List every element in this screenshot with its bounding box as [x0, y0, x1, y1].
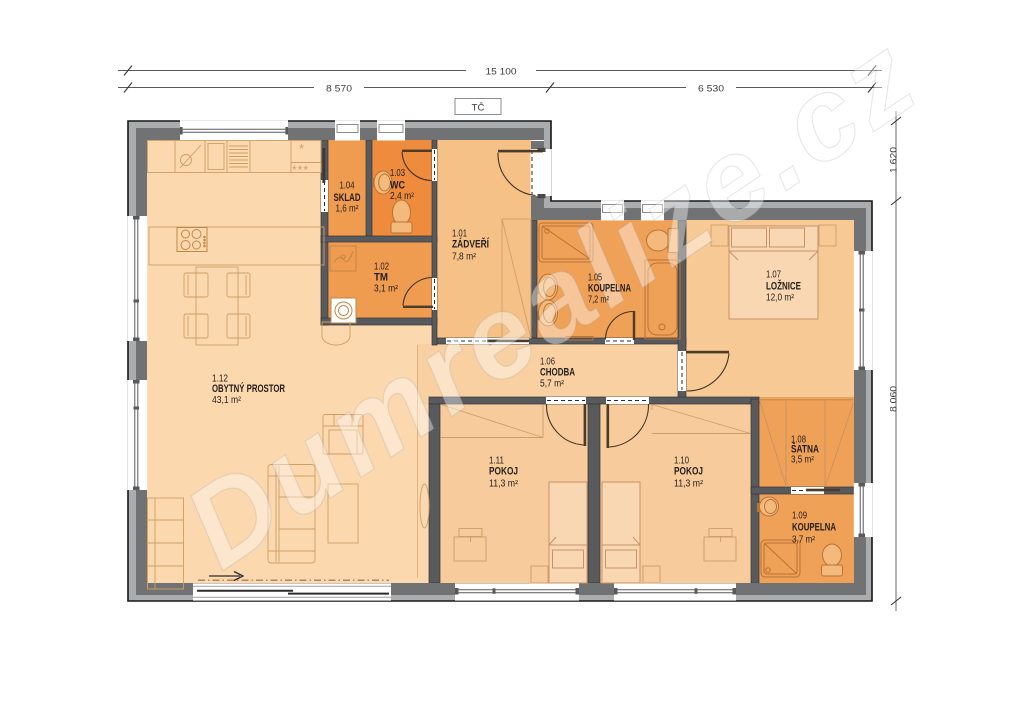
svg-text:11,3 m²: 11,3 m² — [674, 479, 704, 490]
svg-text:3,7 m²: 3,7 m² — [792, 535, 816, 546]
svg-text:KOUPELNA: KOUPELNA — [792, 522, 836, 534]
svg-text:SKLAD: SKLAD — [334, 192, 361, 204]
svg-text:3,1 m²: 3,1 m² — [374, 284, 399, 295]
svg-text:5,7 m²: 5,7 m² — [540, 379, 565, 390]
svg-text:7,2 m²: 7,2 m² — [588, 295, 610, 306]
svg-text:15 100: 15 100 — [486, 67, 517, 78]
svg-text:1.09: 1.09 — [792, 511, 807, 522]
svg-text:7,8 m²: 7,8 m² — [452, 252, 477, 263]
svg-text:*: * — [299, 141, 304, 156]
svg-text:1 620: 1 620 — [889, 147, 900, 173]
svg-text:POKOJ: POKOJ — [674, 466, 703, 478]
svg-text:12,0 m²: 12,0 m² — [766, 293, 795, 304]
svg-text:TČ: TČ — [472, 103, 485, 114]
svg-text:POKOJ: POKOJ — [489, 466, 518, 478]
svg-text:8 060: 8 060 — [889, 386, 900, 412]
svg-text:1.03: 1.03 — [390, 168, 405, 179]
svg-text:TM: TM — [374, 272, 388, 284]
svg-text:KOUPELNA: KOUPELNA — [588, 283, 631, 295]
svg-text:ZÁDVEŘÍ: ZÁDVEŘÍ — [452, 238, 490, 251]
svg-text:OBYTNÝ PROSTOR: OBYTNÝ PROSTOR — [212, 382, 285, 395]
svg-text:1,6 m²: 1,6 m² — [336, 204, 360, 215]
svg-text:1.04: 1.04 — [340, 181, 355, 192]
svg-text:6 530: 6 530 — [698, 84, 724, 95]
svg-text:WC: WC — [390, 180, 405, 192]
svg-text:CHODBA: CHODBA — [540, 367, 575, 379]
svg-text:43,1 m²: 43,1 m² — [212, 395, 242, 406]
svg-text:LOŽNICE: LOŽNICE — [766, 280, 801, 293]
svg-text:3,5 m²: 3,5 m² — [791, 455, 815, 466]
svg-text:1.07: 1.07 — [766, 270, 781, 281]
svg-text:2,4 m²: 2,4 m² — [390, 191, 415, 202]
svg-text:8 570: 8 570 — [326, 84, 352, 95]
svg-text:11,3 m²: 11,3 m² — [489, 479, 519, 490]
svg-text:***: *** — [292, 163, 309, 177]
